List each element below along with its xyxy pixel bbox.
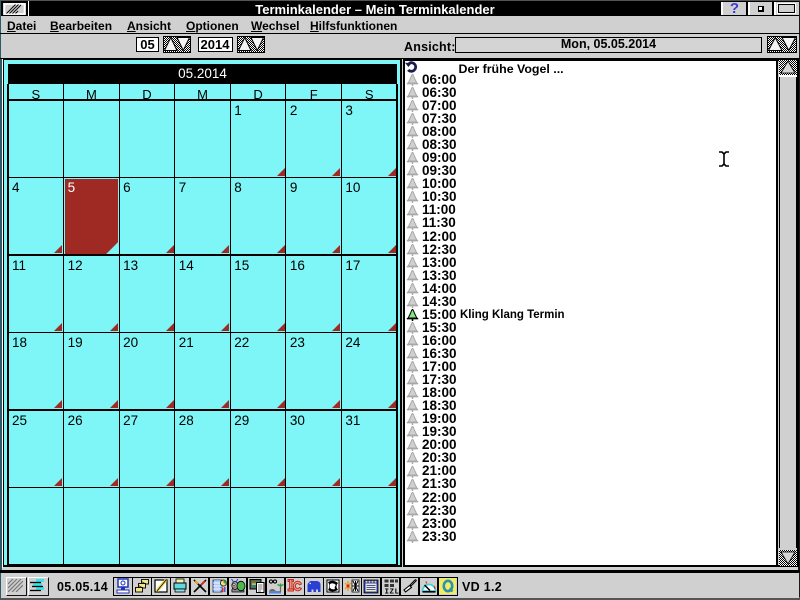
- svg-text:IZL: IZL: [384, 589, 399, 595]
